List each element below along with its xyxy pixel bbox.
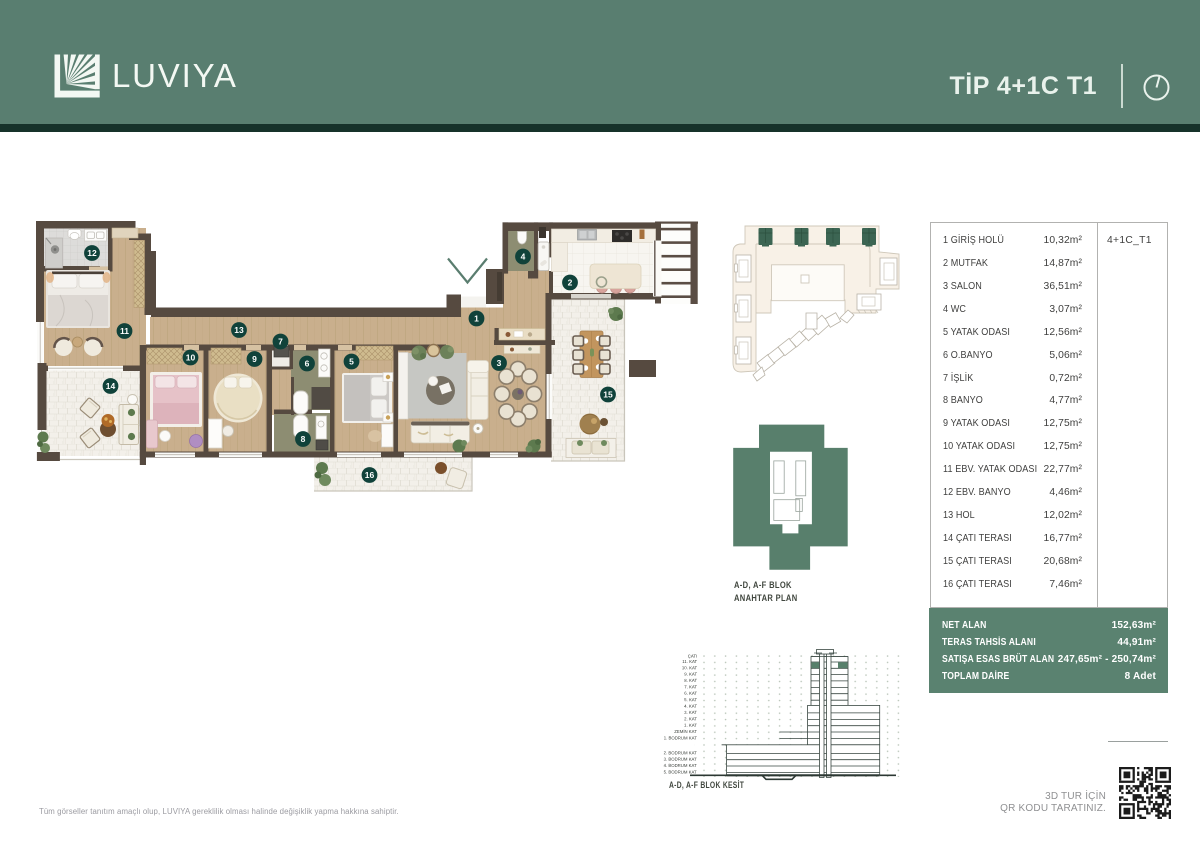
svg-text:ZEMİN KAT: ZEMİN KAT xyxy=(674,729,697,734)
svg-text:3. BODRUM KAT: 3. BODRUM KAT xyxy=(664,757,698,762)
svg-text:9. KAT: 9. KAT xyxy=(684,672,697,677)
svg-text:10. KAT: 10. KAT xyxy=(682,665,698,670)
svg-text:6: 6 xyxy=(305,359,310,369)
svg-text:14: 14 xyxy=(106,381,116,391)
svg-text:2: 2 xyxy=(568,278,573,288)
svg-text:1. KAT: 1. KAT xyxy=(684,723,697,728)
svg-text:ÇATI: ÇATI xyxy=(688,654,697,659)
svg-text:4: 4 xyxy=(521,252,526,262)
svg-text:7: 7 xyxy=(278,337,283,347)
svg-text:5: 5 xyxy=(349,357,354,367)
svg-text:5. BODRUM KAT: 5. BODRUM KAT xyxy=(664,770,698,775)
svg-text:6. KAT: 6. KAT xyxy=(684,691,697,696)
svg-text:1: 1 xyxy=(474,314,479,324)
svg-text:3: 3 xyxy=(497,358,502,368)
svg-text:7. KAT: 7. KAT xyxy=(684,684,697,689)
svg-text:12: 12 xyxy=(87,248,97,258)
svg-text:13: 13 xyxy=(234,325,244,335)
svg-text:8. KAT: 8. KAT xyxy=(684,678,697,683)
svg-text:16: 16 xyxy=(365,470,375,480)
svg-text:9: 9 xyxy=(252,354,257,364)
svg-text:4. BODRUM KAT: 4. BODRUM KAT xyxy=(664,763,698,768)
svg-text:2. BODRUM KAT: 2. BODRUM KAT xyxy=(664,750,698,755)
svg-text:10: 10 xyxy=(186,353,196,363)
svg-text:15: 15 xyxy=(603,390,613,400)
svg-text:5. KAT: 5. KAT xyxy=(684,697,697,702)
svg-text:8: 8 xyxy=(301,434,306,444)
svg-text:11: 11 xyxy=(120,326,129,336)
svg-text:3. KAT: 3. KAT xyxy=(684,710,697,715)
svg-text:11. KAT: 11. KAT xyxy=(682,659,697,664)
svg-text:1. BODRUM KAT: 1. BODRUM KAT xyxy=(664,735,698,740)
svg-text:4. KAT: 4. KAT xyxy=(684,704,697,709)
svg-text:2. KAT: 2. KAT xyxy=(684,716,697,721)
